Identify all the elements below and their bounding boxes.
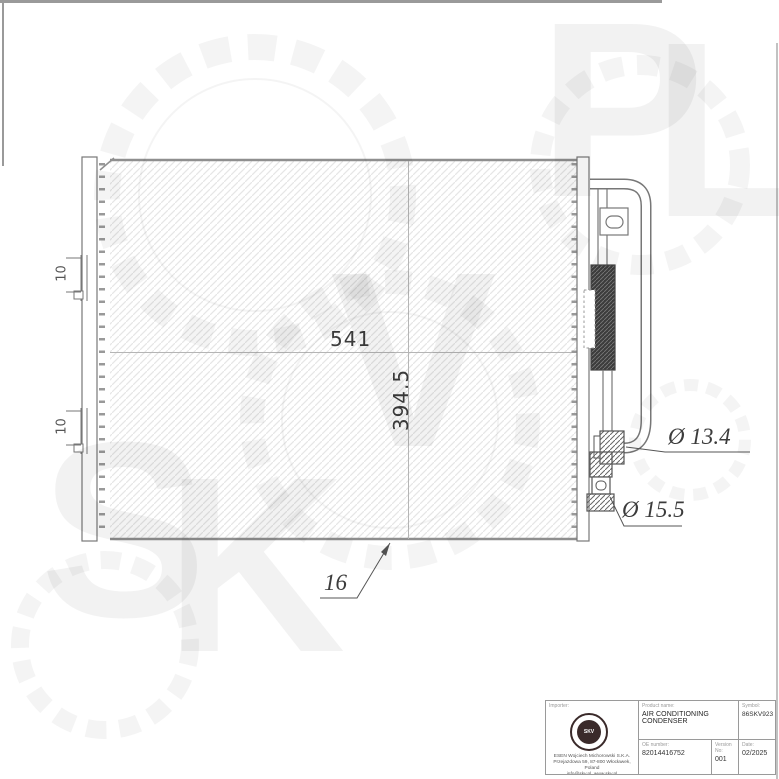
dimension-core-depth: 16	[324, 570, 347, 596]
oe-number-label: OE number:	[639, 740, 711, 748]
version-cell: Version No: 001	[712, 740, 738, 774]
symbol-value: 86SKV923	[739, 709, 776, 718]
product-name-cell: Product name: AIR CONDITIONING CONDENSER	[639, 701, 738, 739]
lower-port-fitting	[587, 452, 614, 511]
technical-drawing-page: 541 394.5 Ø 13.4 Ø 15.5 16 10 10 S K V P…	[0, 0, 779, 779]
dimension-upper-port-diameter: Ø 13.4	[668, 424, 731, 450]
symbol-label: Symbol:	[739, 701, 776, 709]
company-logo: SKV	[570, 713, 608, 751]
dimension-lower-port-diameter: Ø 15.5	[622, 497, 685, 523]
oe-number-cell: OE number: 82014416752	[639, 740, 711, 774]
importer-address-line3: info@skv.pl, www.skv.pl	[546, 772, 638, 774]
importer-address-line2: Przejazdowa 59, 87-800 Włocławek, Poland	[546, 760, 638, 772]
date-cell: Date: 02/2025	[739, 740, 776, 774]
product-name-value: AIR CONDITIONING CONDENSER	[639, 709, 738, 725]
title-block: Importer: SKV ESEN Wojciech Michorowski …	[545, 700, 776, 775]
pipe-bracket	[600, 208, 628, 235]
importer-cell: Importer: SKV ESEN Wojciech Michorowski …	[546, 701, 638, 774]
logo-gear-icon: SKV	[577, 720, 601, 744]
date-label: Date:	[739, 740, 776, 748]
dimension-core-height: 394.5	[389, 364, 413, 436]
product-name-label: Product name:	[639, 701, 738, 709]
dimension-bracket-upper: 10	[55, 260, 70, 288]
dimension-bracket-lower: 10	[55, 413, 70, 441]
date-value: 02/2025	[739, 748, 776, 757]
oe-number-value: 82014416752	[639, 748, 711, 757]
left-tank	[82, 157, 102, 541]
version-value: 001	[712, 754, 738, 763]
symbol-cell: Symbol: 86SKV923	[739, 701, 776, 739]
version-label: Version No:	[712, 740, 738, 754]
importer-address: ESEN Wojciech Michorowski S.K.A. Przejaz…	[546, 754, 638, 774]
dimension-core-width: 541	[330, 327, 371, 351]
importer-label: Importer:	[546, 701, 638, 709]
